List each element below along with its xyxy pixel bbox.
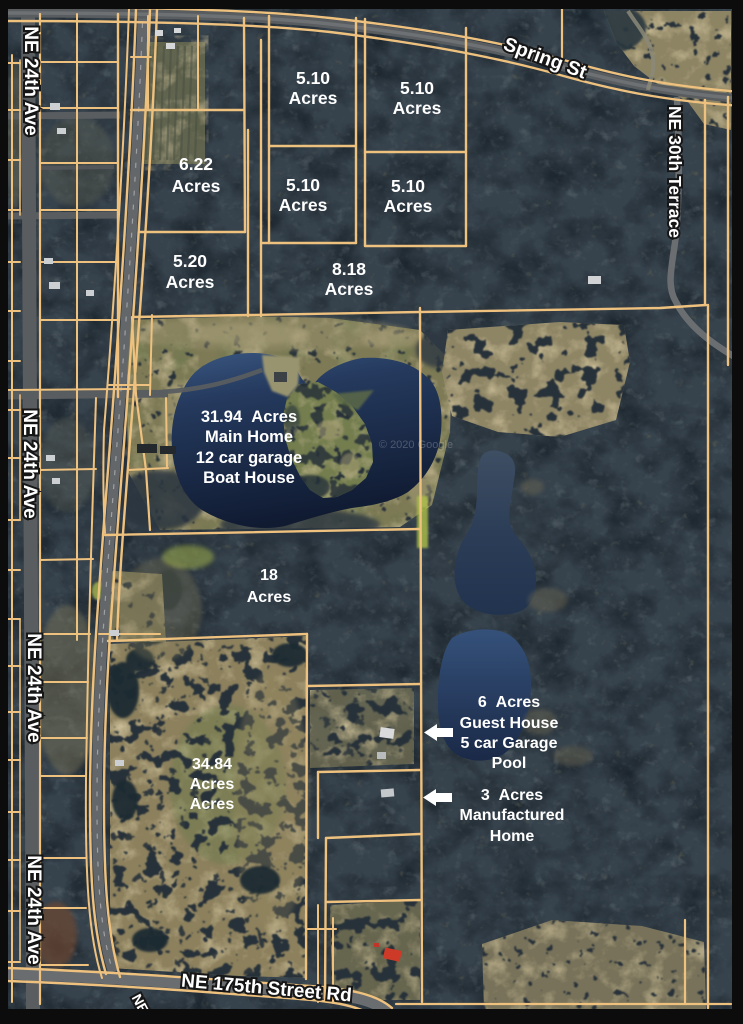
svg-text:Acres: Acres [393,98,442,118]
svg-text:NE 24th Ave: NE 24th Ave [20,26,41,135]
svg-text:5.10: 5.10 [391,176,425,196]
svg-text:© 2020 Google: © 2020 Google [379,439,453,451]
svg-text:5.10: 5.10 [400,78,434,98]
svg-text:NE 24th Ave: NE 24th Ave [19,409,40,518]
svg-text:Acres: Acres [384,196,433,216]
svg-text:34.84: 34.84 [192,756,232,773]
svg-text:Home: Home [490,828,535,845]
svg-text:8.18: 8.18 [332,259,366,279]
svg-text:Acres: Acres [190,776,235,793]
svg-text:NE 24th Ave: NE 24th Ave [23,633,44,742]
svg-text:Acres: Acres [172,176,221,196]
svg-text:3 Acres: 3 Acres [481,787,543,804]
svg-text:6 Acres: 6 Acres [478,694,540,711]
svg-text:Pool: Pool [492,755,527,772]
svg-text:Main Home: Main Home [205,428,293,446]
svg-text:Guest House: Guest House [460,715,559,732]
svg-text:Acres: Acres [279,195,328,215]
svg-text:NE 30th Terrace: NE 30th Terrace [665,106,685,238]
svg-text:18: 18 [260,567,278,584]
svg-text:NE 24th Ave: NE 24th Ave [23,855,44,964]
svg-text:Acres: Acres [166,272,215,292]
svg-text:12 car garage: 12 car garage [196,449,302,467]
svg-text:Acres: Acres [247,589,292,606]
svg-text:Acres: Acres [325,279,374,299]
svg-text:6.22: 6.22 [179,154,213,174]
svg-text:31.94 Acres: 31.94 Acres [201,408,297,426]
svg-text:5 car Garage: 5 car Garage [461,735,558,752]
svg-text:5.10: 5.10 [296,68,330,88]
svg-text:Boat House: Boat House [203,469,295,487]
svg-text:Manufactured: Manufactured [460,807,565,824]
svg-text:5.10: 5.10 [286,175,320,195]
svg-text:Acres: Acres [289,88,338,108]
svg-text:5.20: 5.20 [173,251,207,271]
svg-text:Acres: Acres [190,796,235,813]
